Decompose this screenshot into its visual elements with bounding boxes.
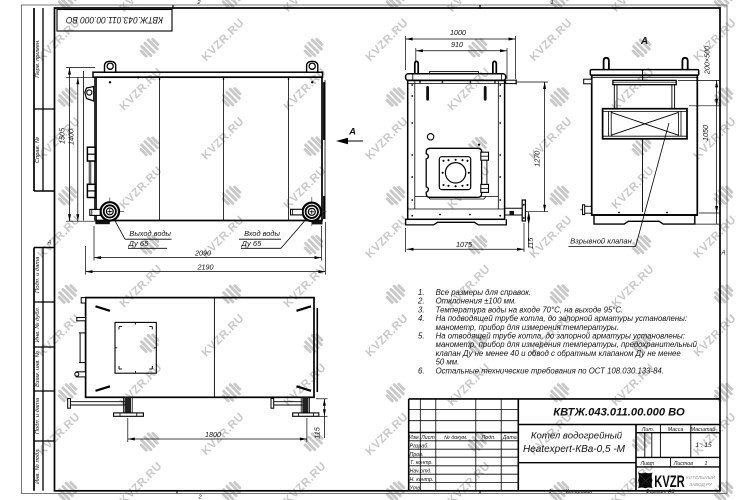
svg-text:1505: 1505	[58, 127, 67, 144]
svg-text:№ докум.: № докум.	[444, 435, 467, 441]
svg-text:1050: 1050	[701, 125, 710, 141]
svg-text:А: А	[46, 241, 51, 247]
svg-text:А: А	[348, 127, 356, 138]
svg-text:2.: 2.	[417, 297, 425, 306]
svg-text:А: А	[640, 36, 648, 47]
svg-text:1800: 1800	[205, 430, 221, 439]
svg-text:Взрывной клапан: Взрывной клапан	[570, 237, 633, 246]
svg-text:2090: 2090	[194, 248, 211, 257]
svg-text:Остальные технические требован: Остальные технические требования по ОСТ …	[436, 366, 664, 375]
svg-text:2190: 2190	[197, 262, 214, 271]
svg-text:Т. контр.: Т. контр.	[410, 460, 433, 466]
svg-text:Инв. № дубл.: Инв. № дубл.	[35, 307, 41, 343]
svg-text:Нач.отд.: Нач.отд.	[410, 469, 432, 475]
svg-text:1400: 1400	[66, 129, 75, 145]
svg-text:115: 115	[313, 426, 322, 438]
svg-text:1075: 1075	[456, 240, 473, 249]
svg-text:Ду 65: Ду 65	[128, 239, 150, 248]
svg-text:Дата: Дата	[502, 435, 517, 441]
svg-text:Взам. инв. №: Взам. инв. №	[35, 351, 41, 387]
svg-text:манометр, прибор для измерения: манометр, прибор для измерения температу…	[436, 340, 698, 349]
svg-text:Н. контр.: Н. контр.	[410, 477, 434, 483]
svg-text:1270: 1270	[533, 151, 542, 167]
svg-text:4.: 4.	[418, 314, 425, 323]
svg-text:Лит.: Лит.	[641, 427, 654, 433]
svg-text:1 : 15: 1 : 15	[695, 442, 712, 449]
svg-text:Heatexpert-КВа-0,5 -М: Heatexpert-КВа-0,5 -М	[523, 444, 626, 455]
svg-text:1: 1	[550, 0, 553, 6]
svg-text:2: 2	[196, 0, 200, 6]
svg-text:Разраб.: Разраб.	[410, 444, 429, 450]
svg-text:6.: 6.	[418, 366, 425, 375]
svg-text:Лист: Лист	[420, 435, 435, 441]
svg-text:клапан Ду не менее 40 и обвод: клапан Ду не менее 40 и обвод с обратным…	[436, 349, 682, 358]
svg-text:5.: 5.	[418, 332, 425, 341]
svg-text:Выход воды: Выход воды	[129, 229, 171, 238]
svg-text:Вход воды: Вход воды	[244, 229, 280, 238]
svg-text:манометр, прибор для измерения: манометр, прибор для измерения температу…	[436, 323, 619, 332]
svg-text:На отводящей трубе котла, до з: На отводящей трубе котла, до запорной ар…	[436, 332, 685, 341]
svg-text:Пров.: Пров.	[410, 452, 424, 458]
svg-text:Подп.: Подп.	[481, 435, 495, 441]
svg-text:Справ. №: Справ. №	[35, 137, 41, 163]
svg-text:200×500: 200×500	[703, 46, 712, 75]
svg-text:Подп. и дата: Подп. и дата	[35, 397, 41, 434]
svg-text:1000: 1000	[450, 28, 466, 37]
svg-text:КВТЖ.043.011.00.000 ВО: КВТЖ.043.011.00.000 ВО	[553, 406, 685, 418]
svg-text:1: 1	[705, 461, 708, 467]
svg-text:КВТЖ.043.011.00.000 ВО: КВТЖ.043.011.00.000 ВО	[65, 15, 163, 26]
svg-text:Формат А3: Формат А3	[646, 489, 675, 495]
svg-text:На подводящей трубе котла, до: На подводящей трубе котла, до запорной а…	[436, 314, 687, 323]
svg-text:Подп. и дата: Подп. и дата	[35, 256, 41, 293]
svg-text:Отклонения ±100 мм.: Отклонения ±100 мм.	[436, 297, 517, 306]
svg-text:А: А	[720, 251, 725, 257]
svg-text:Масса: Масса	[668, 427, 684, 433]
svg-text:115: 115	[526, 237, 535, 249]
svg-text:Копировал: Копировал	[566, 489, 592, 495]
svg-text:3.: 3.	[418, 305, 425, 314]
svg-text:Утв.: Утв.	[410, 485, 422, 491]
svg-text:Температура воды на входе 70°С: Температура воды на входе 70°С, на выход…	[436, 305, 624, 314]
svg-text:1.: 1.	[418, 288, 425, 297]
svg-text:Инв. № подл.: Инв. № подл.	[35, 448, 41, 484]
svg-text:КОТЕЛЬНЫЙ: КОТЕЛЬНЫЙ	[686, 473, 716, 480]
svg-text:Лист: Лист	[640, 461, 655, 467]
svg-text:Листов: Листов	[673, 461, 694, 467]
svg-text:2: 2	[197, 495, 201, 500]
svg-text:910: 910	[451, 40, 463, 49]
svg-text:1: 1	[548, 489, 551, 495]
svg-text:Ду 65: Ду 65	[241, 239, 263, 248]
svg-text:Масштаб: Масштаб	[691, 427, 717, 433]
svg-text:Изм.: Изм.	[409, 435, 420, 441]
svg-text:Котел водогрейный: Котел водогрейный	[531, 430, 623, 441]
svg-text:ЗАВОД РУ: ЗАВОД РУ	[689, 482, 713, 487]
svg-text:50 мм.: 50 мм.	[436, 358, 460, 367]
svg-text:Все размеры для справок.: Все размеры для справок.	[436, 288, 532, 297]
svg-text:Перв. примен.: Перв. примен.	[35, 39, 41, 78]
